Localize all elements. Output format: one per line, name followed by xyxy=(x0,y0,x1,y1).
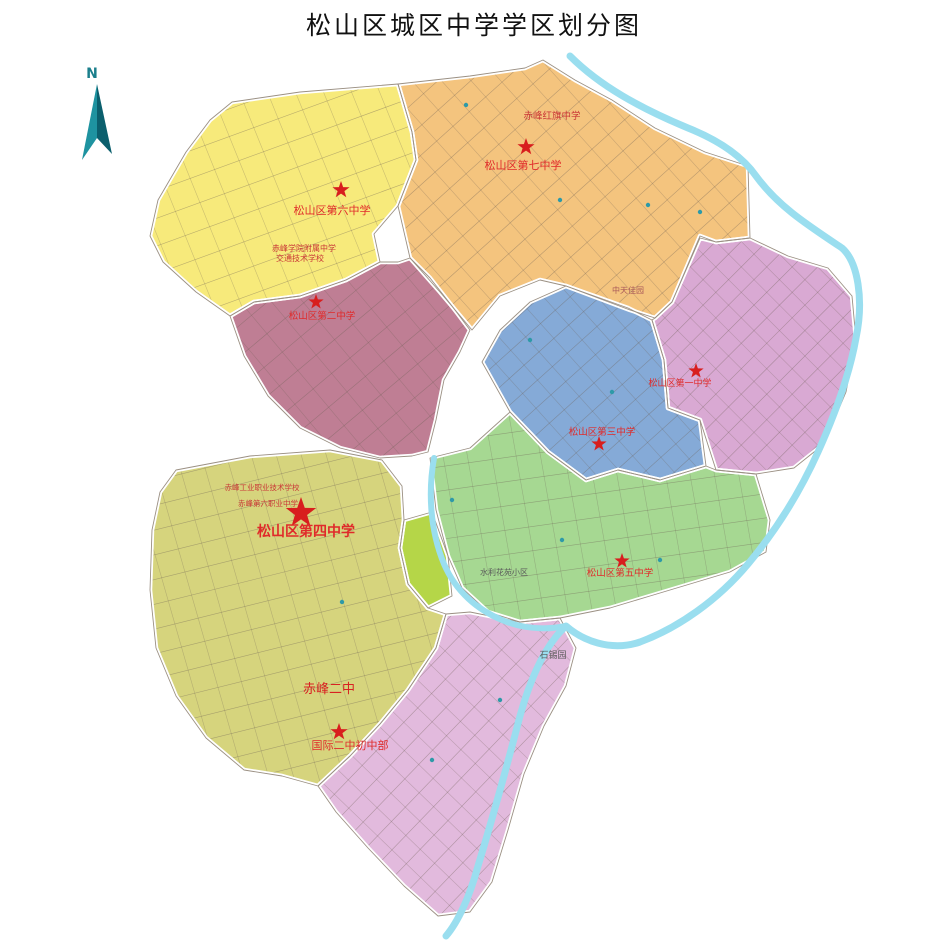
poi-marker xyxy=(698,210,702,214)
poi-marker xyxy=(498,698,502,702)
poi-marker xyxy=(646,203,650,207)
landmark-label: 赤峰学院附属中学 xyxy=(272,243,336,253)
map-page: 松山区城区中学学区划分图 N xyxy=(0,0,948,946)
school-label: 松山区第七中学 xyxy=(485,158,562,172)
landmark-label: 赤峰红旗中学 xyxy=(523,110,580,122)
poi-marker xyxy=(560,538,564,542)
compass-arrow-icon xyxy=(82,84,97,160)
landmark-label: 水利花苑小区 xyxy=(480,567,528,577)
compass-label: N xyxy=(86,66,98,82)
district-map: N xyxy=(0,0,948,946)
landmark-label: 交通技术学校 xyxy=(276,253,324,263)
school-label: 松山区第六中学 xyxy=(294,203,371,217)
poi-marker xyxy=(558,198,562,202)
school-label: 松山区第五中学 xyxy=(587,567,654,579)
landmark-label: 石锡园 xyxy=(539,650,566,661)
landmark-label: 中天佳园 xyxy=(612,285,644,295)
poi-marker xyxy=(528,338,532,342)
school-label: 松山区第三中学 xyxy=(569,426,636,438)
poi-marker xyxy=(610,390,614,394)
poi-marker xyxy=(464,103,468,107)
school-label: 国际二中初中部 xyxy=(312,738,389,752)
poi-marker xyxy=(430,758,434,762)
poi-marker xyxy=(450,498,454,502)
school-label: 松山区第二中学 xyxy=(289,310,356,322)
landmark-label: 赤峰第六职业中学 xyxy=(238,498,298,508)
poi-marker xyxy=(658,558,662,562)
landmark-label: 赤峰二中 xyxy=(303,682,355,697)
compass-arrow-icon xyxy=(97,84,112,154)
landmark-label: 赤峰工业职业技术学校 xyxy=(225,482,300,492)
school-label: 松山区第四中学 xyxy=(257,523,355,540)
poi-marker xyxy=(340,600,344,604)
school-label: 松山区第一中学 xyxy=(648,377,711,389)
compass: N xyxy=(82,66,112,160)
